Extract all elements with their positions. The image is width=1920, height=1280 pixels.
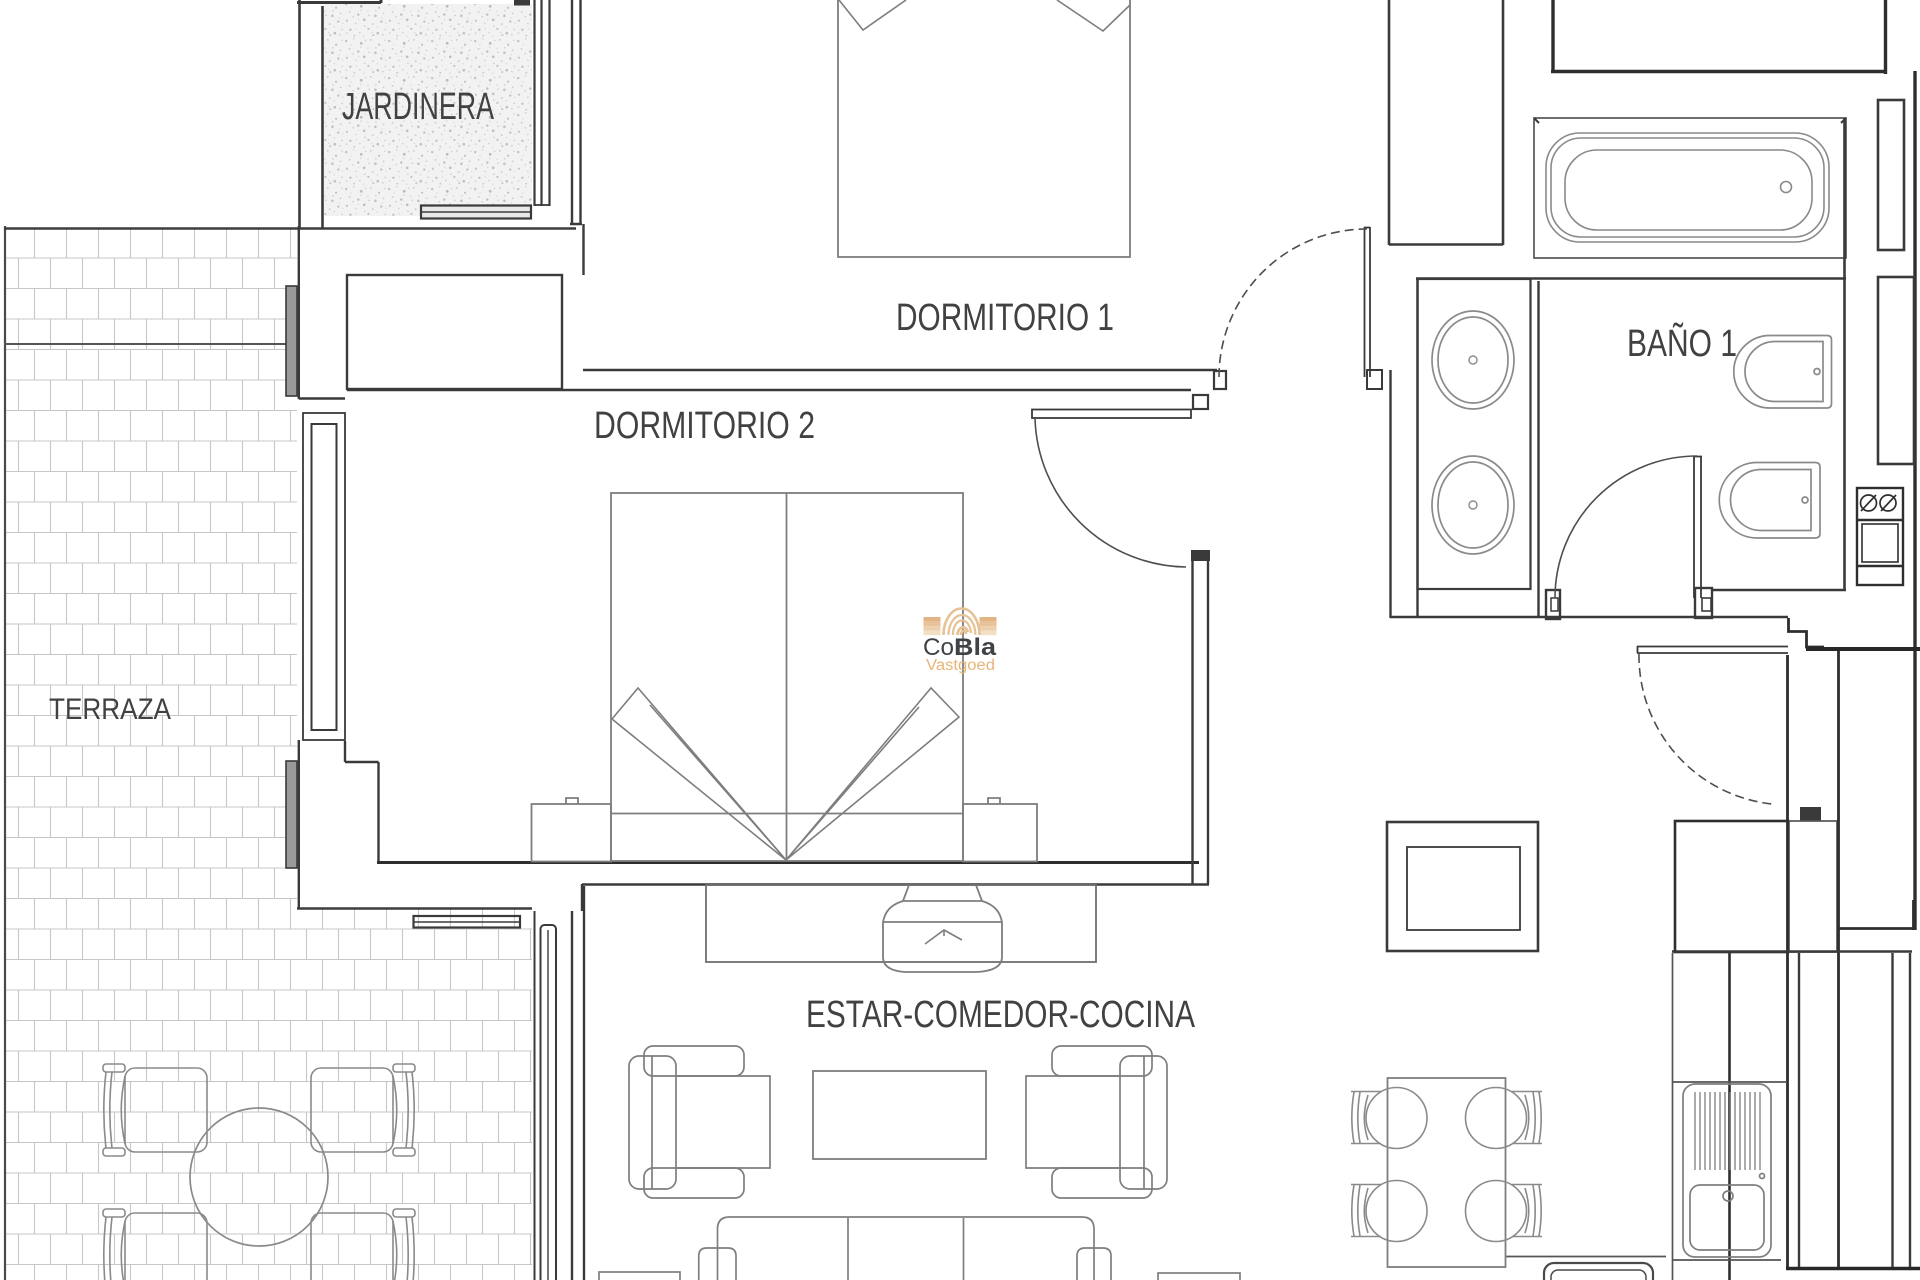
- svg-text:ESTAR-COMEDOR-COCINA: ESTAR-COMEDOR-COCINA: [806, 994, 1196, 1036]
- svg-text:JARDINERA: JARDINERA: [342, 86, 494, 128]
- svg-text:BAÑO 1: BAÑO 1: [1627, 322, 1737, 365]
- svg-text:TERRAZA: TERRAZA: [49, 693, 171, 726]
- svg-text:DORMITORIO 2: DORMITORIO 2: [594, 405, 815, 447]
- svg-text:Vastgoed: Vastgoed: [926, 657, 995, 674]
- svg-text:DORMITORIO 1: DORMITORIO 1: [896, 297, 1114, 339]
